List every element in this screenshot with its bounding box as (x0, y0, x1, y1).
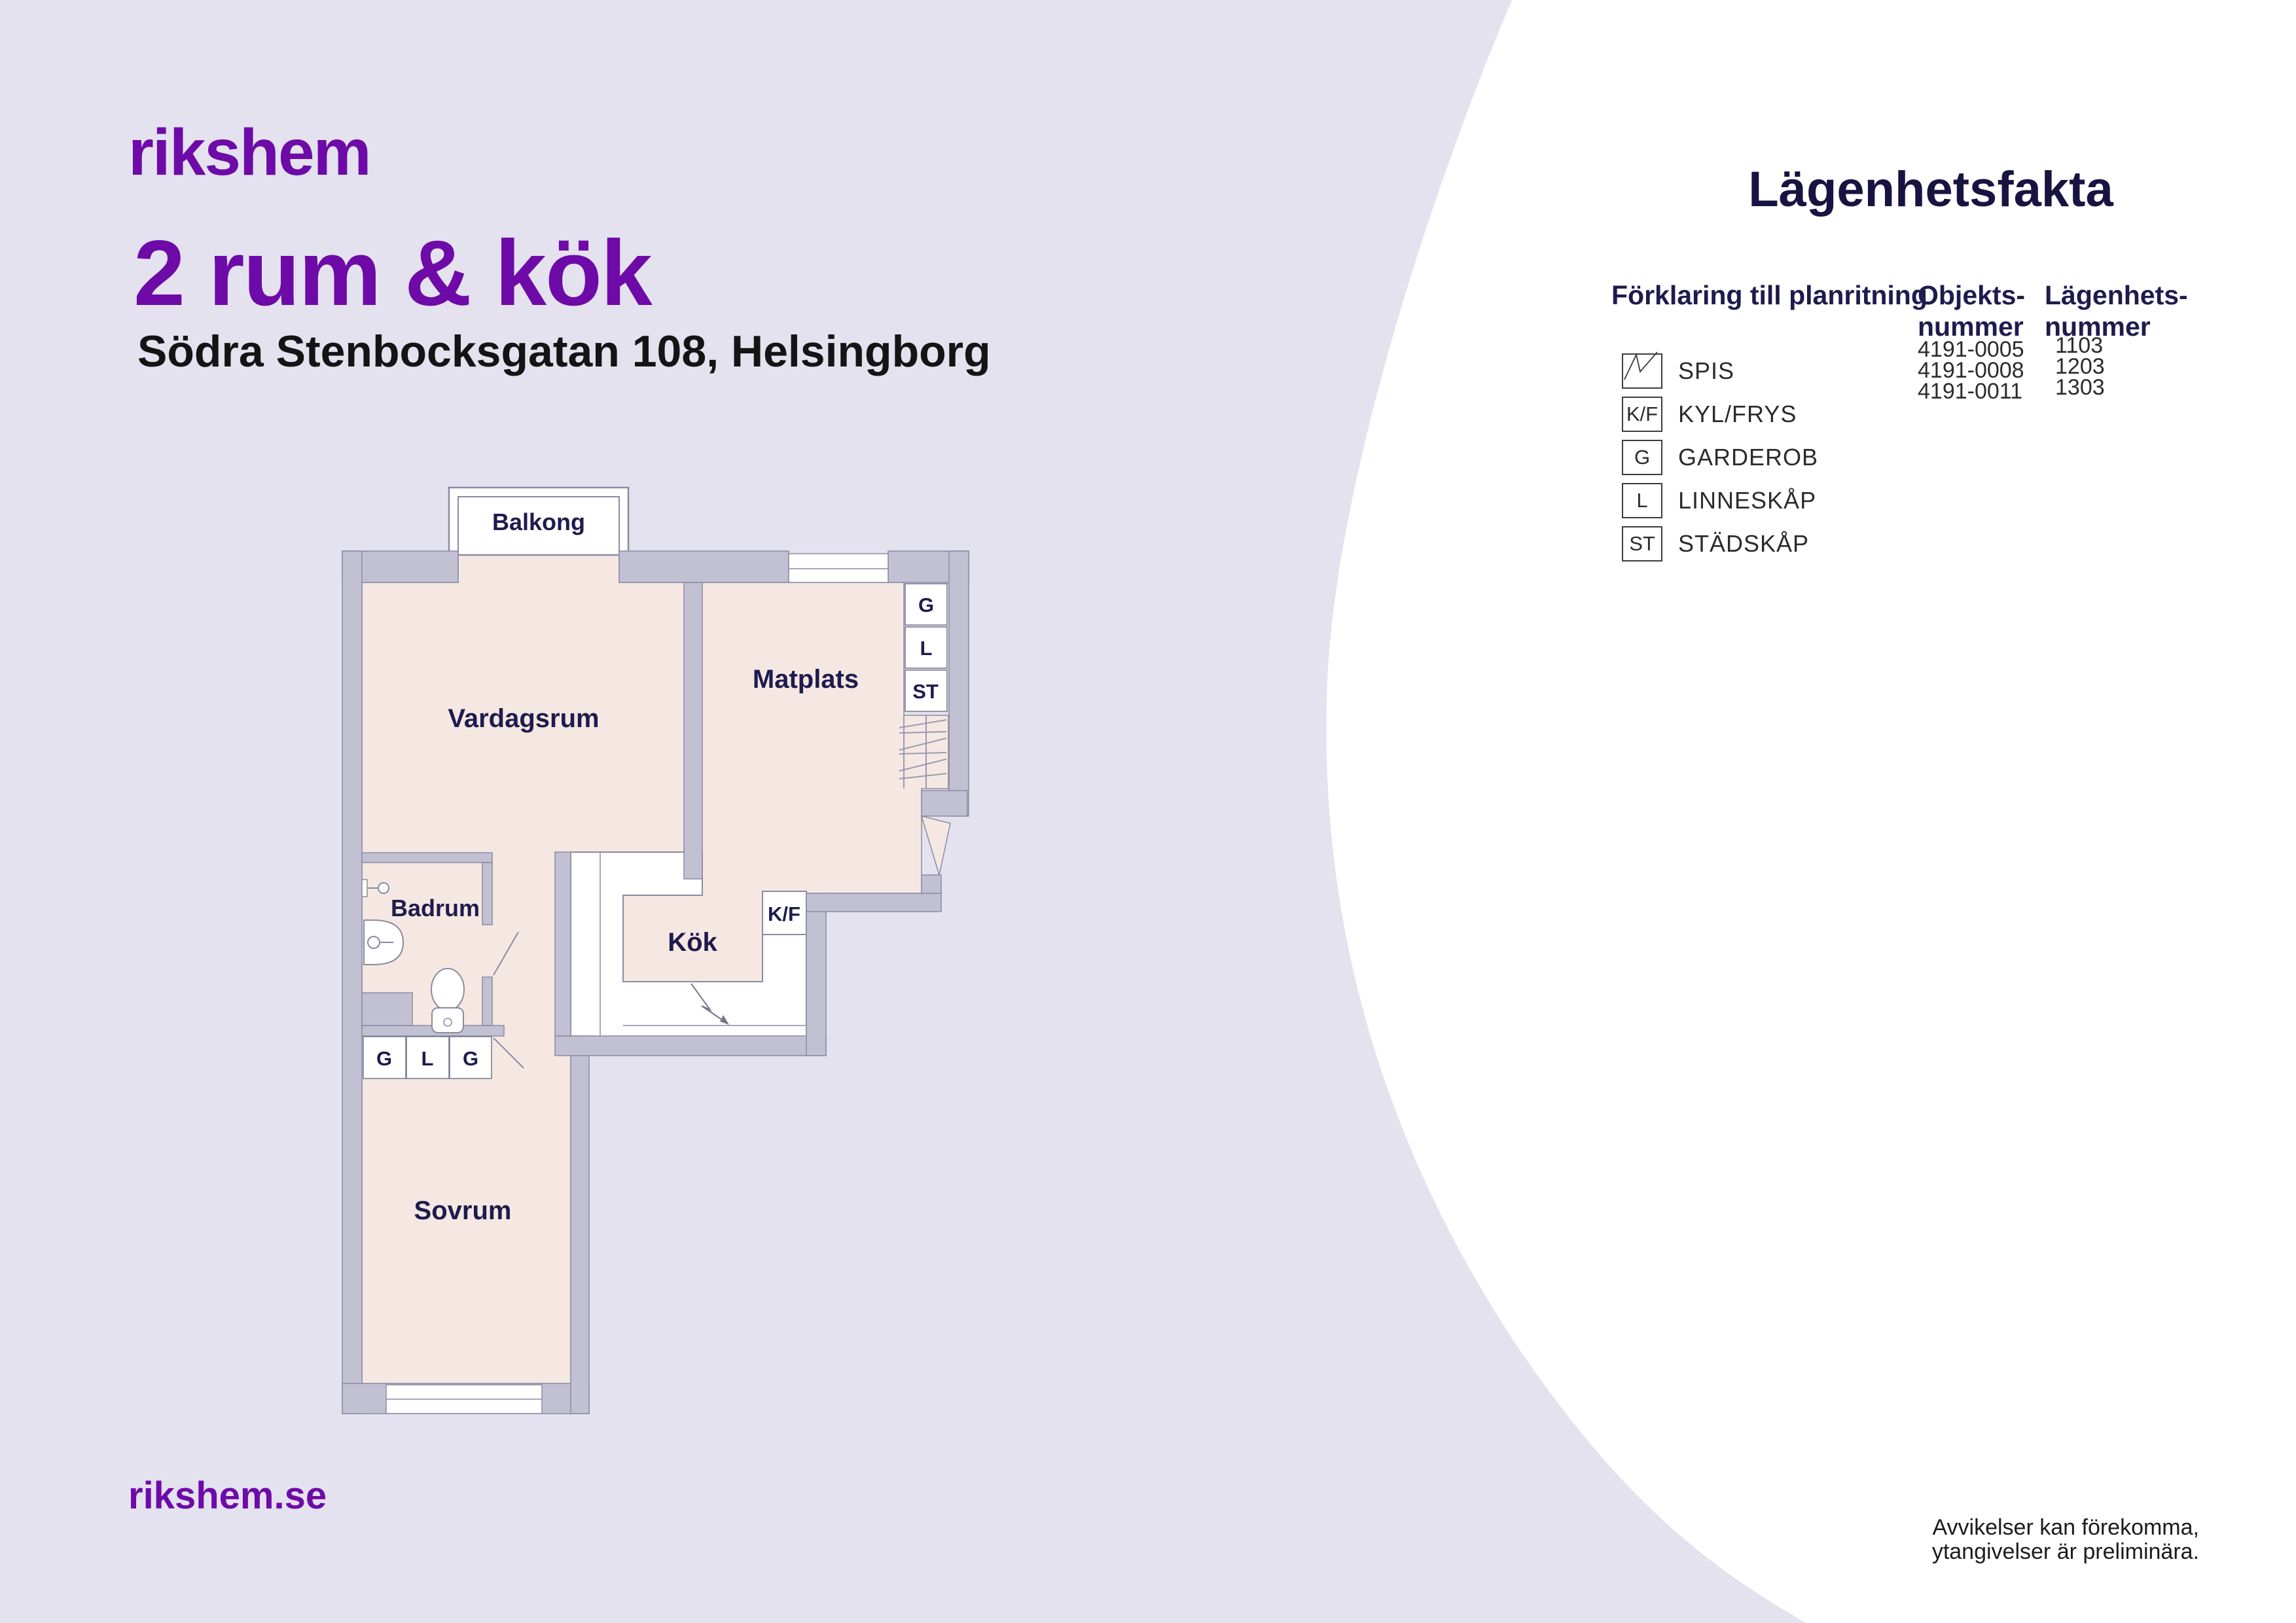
dining-window (789, 554, 888, 582)
label-balcony: Balkong (492, 508, 585, 535)
label-living: Vardagsrum (448, 704, 599, 733)
legend-label: GARDEROB (1678, 444, 1818, 471)
label-hall-g2: G (463, 1047, 478, 1070)
label-closet-g: G (918, 594, 934, 616)
object-number-header-line1: Objekts- (1918, 280, 2025, 312)
bedroom-window (386, 1385, 542, 1414)
cleaning-symbol-box: ST (1622, 526, 1662, 562)
toilet-icon (431, 969, 464, 1033)
object-number: 4191-0005 (1918, 339, 2024, 360)
label-fridge: K/F (768, 902, 800, 925)
page-title: 2 rum & kök (134, 220, 651, 327)
object-number-header: Objekts- nummer (1918, 280, 2025, 343)
linen-symbol-box: L (1622, 483, 1662, 518)
label-hall-g1: G (376, 1047, 392, 1070)
plan-legend: SPIS K/F KYL/FRYS G GARDEROB L LINNESKÅP… (1622, 349, 1818, 565)
legend-label: STÄDSKÅP (1678, 530, 1809, 558)
facts-title: Lägenhetsfakta (1715, 161, 2147, 218)
apartment-number: 1303 (2055, 377, 2105, 398)
entry-door (922, 816, 950, 875)
disclaimer: Avvikelser kan förekomma, ytangivelser ä… (1932, 1516, 2199, 1564)
label-bathroom: Badrum (391, 895, 480, 921)
website-link[interactable]: rikshem.se (128, 1474, 327, 1518)
rikshem-logo: rikshem (128, 115, 370, 190)
legend-row-kylfrys: K/F KYL/FRYS (1622, 393, 1818, 436)
label-dining: Matplats (753, 665, 859, 694)
label-bedroom: Sovrum (414, 1196, 512, 1225)
apartment-number-list: 1103 1203 1303 (2055, 335, 2105, 398)
disclaimer-line1: Avvikelser kan förekomma, (1932, 1516, 2199, 1540)
legend-row-spis: SPIS (1622, 349, 1818, 393)
legend-label: SPIS (1678, 357, 1734, 385)
sink-icon (364, 920, 403, 965)
legend-row-linneskap: L LINNESKÅP (1622, 479, 1818, 522)
apartment-number: 1203 (2055, 356, 2105, 377)
fridge-symbol-box: K/F (1622, 397, 1662, 432)
label-closet-st: ST (912, 680, 939, 703)
label-hall-l: L (422, 1047, 434, 1070)
label-closet-l: L (920, 637, 933, 660)
legend-row-stadskap: ST STÄDSKÅP (1622, 522, 1818, 565)
object-number-list: 4191-0005 4191-0008 4191-0011 (1918, 339, 2024, 402)
legend-row-garderob: G GARDEROB (1622, 436, 1818, 479)
disclaimer-line2: ytangivelser är preliminära. (1932, 1540, 2199, 1564)
address-subtitle: Södra Stenbocksgatan 108, Helsingborg (137, 326, 991, 377)
page: Balkong Vardagsrum Matplats Badrum Kök S… (0, 0, 2296, 1623)
label-kitchen: Kök (668, 928, 717, 957)
spis-icon (1622, 353, 1662, 389)
legend-label: LINNESKÅP (1678, 487, 1816, 514)
wardrobe-symbol-box: G (1622, 440, 1662, 475)
apartment-number-header-line1: Lägenhets- (2045, 280, 2188, 312)
apartment-floor (362, 551, 948, 1383)
apartment-number: 1103 (2055, 335, 2105, 356)
object-number: 4191-0011 (1918, 381, 2024, 402)
object-number: 4191-0008 (1918, 360, 2024, 381)
curved-panel-background (1326, 0, 2296, 1623)
legend-title: Förklaring till planritning (1611, 280, 1928, 311)
legend-label: KYL/FRYS (1678, 401, 1797, 428)
